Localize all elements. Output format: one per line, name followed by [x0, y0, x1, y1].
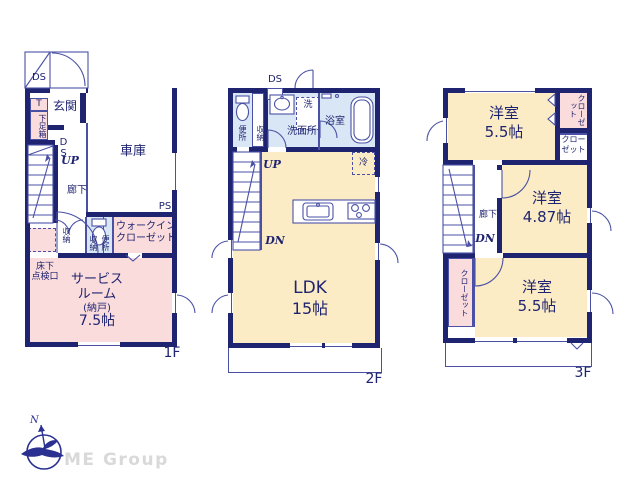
service-room-label-2: ルーム [62, 288, 132, 303]
toilet-fixture-2f [236, 96, 249, 121]
stairs-down-label-3f: DN [472, 233, 498, 245]
underfloor-label-2: 点検口 [28, 272, 62, 282]
washbasin-fixture [270, 95, 294, 114]
floor1-label: 1F [158, 346, 186, 362]
wic-label-1: ウォークイン [116, 221, 170, 232]
bedroom-mid-label-1: 洋室 [519, 190, 575, 207]
hallway-label-3f: 廊下 [475, 210, 501, 220]
closet-top-label: クローゼット [563, 94, 585, 126]
closet-label-2f: 収納 [253, 122, 264, 144]
ldk-label-2: 15帖 [286, 300, 334, 318]
entrance-label: 玄関 [50, 100, 80, 113]
t-box-label: T [30, 99, 48, 109]
company-logo: N ME Group [20, 412, 240, 478]
company-name: ME Group [64, 450, 169, 470]
closet-mid-label-2: ゼット [560, 146, 587, 155]
service-room-label-4: 7.5帖 [62, 314, 132, 330]
washroom-label: 洗面所 [280, 126, 324, 137]
closet-left-label: クローゼット [453, 264, 468, 322]
closet-mid-label-1: クロー [560, 136, 587, 145]
floor2-label: 2F [360, 372, 388, 388]
staircase-1f [28, 145, 53, 223]
fridge-label: 冷 [352, 158, 375, 168]
underfloor-label-1: 床下 [30, 262, 60, 272]
pipe-space-label: PS [155, 201, 175, 212]
floor3-linework [425, 75, 635, 390]
floorplan-3f: 洋室 5.5帖 クローゼット クロー ゼット 廊下 DN 洋室 4.87帖 クロ… [425, 75, 635, 390]
garage-label: 車庫 [115, 145, 151, 160]
side-closet-label: 収納 [86, 233, 97, 252]
shoe-box-label: 下足箱 [32, 112, 46, 140]
kitchen-counter [293, 200, 375, 223]
duct-label-2f: DS [263, 74, 287, 85]
staircase-2f [233, 152, 260, 250]
bedroom-top-label-2: 5.5帖 [477, 124, 531, 141]
compass-needle-tip [38, 425, 45, 432]
hall-closet-label: 収納 [58, 223, 70, 247]
bedroom-bottom-label-1: 洋室 [509, 279, 565, 296]
floorplan-1f: DS 玄関 T 下足箱 DS UP 廊下 車庫 PS 収納 収納 便所 ウォーク… [22, 50, 202, 372]
stairs-down-label-2f: DN [263, 235, 287, 247]
compass-north-letter: N [29, 415, 40, 426]
bedroom-bottom-label-2: 5.5帖 [509, 298, 565, 315]
staircase-3f [443, 165, 473, 253]
service-room-label-1: サービス [62, 273, 132, 288]
washer-label: 洗 [299, 100, 317, 110]
bathroom-label: 浴室 [318, 116, 352, 127]
hallway-label-1f: 廊下 [63, 185, 91, 196]
stairs-up-label-2f: UP [260, 159, 284, 171]
ldk-label-1: LDK [286, 279, 334, 298]
toilet-label-1f: 便所 [98, 233, 109, 252]
floor3-label: 3F [569, 366, 597, 382]
wic-label-2: クローゼット [116, 233, 170, 244]
floorplan-2f: DS 便所 収納 洗 洗面所 浴室 UP DN 冷 LDK 15帖 2F [210, 60, 410, 390]
stairs-up-label-1f: UP [58, 155, 82, 167]
toilet-label-2f: 便所 [235, 122, 246, 144]
bedroom-top-label-1: 洋室 [477, 105, 531, 122]
bedroom-mid-label-2: 4.87帖 [519, 209, 575, 226]
porch-ds-label: DS [30, 72, 48, 83]
